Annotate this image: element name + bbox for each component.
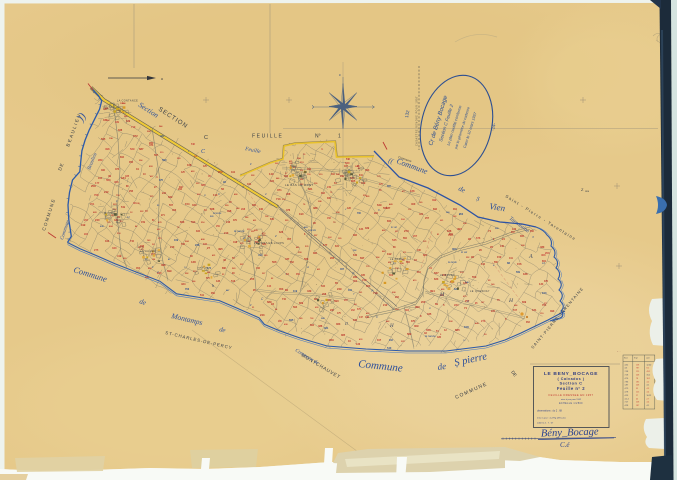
svg-text:419: 419 [117,254,122,258]
svg-text:471: 471 [149,143,154,147]
svg-text:340: 340 [112,246,117,250]
svg-text:331: 331 [270,180,275,183]
svg-text:7.86: 7.86 [625,381,629,383]
svg-text:567: 567 [169,204,174,207]
svg-text:4.79: 4.79 [625,388,629,390]
svg-text:309: 309 [414,324,419,328]
svg-text:332: 332 [203,243,208,246]
svg-text:la lande: la lande [234,229,245,233]
svg-text:4.4: 4.4 [647,392,650,394]
svg-text:A: A [203,194,206,197]
svg-text:4.1: 4.1 [647,405,650,407]
svg-text:154: 154 [185,202,190,206]
svg-text:ECHELLE 1/2500: ECHELLE 1/2500 [559,403,583,405]
svg-text:199: 199 [81,223,86,227]
svg-text:703: 703 [185,288,190,291]
svg-text:631: 631 [335,245,340,248]
svg-text:le val: le val [461,250,467,254]
svg-text:687: 687 [139,147,144,151]
svg-text:185: 185 [361,274,366,277]
svg-text:480: 480 [540,245,545,249]
svg-text:C: C [204,135,208,141]
svg-text:le val: le val [391,226,397,229]
svg-text:258: 258 [636,402,639,404]
svg-text:249: 249 [337,287,342,291]
svg-text:295: 295 [330,257,335,260]
svg-text:1: 1 [338,134,341,140]
svg-text:188: 188 [410,189,415,193]
svg-text:LA CONTANCE: LA CONTANCE [117,100,138,103]
svg-text:cont: cont [646,357,650,360]
svg-text:396: 396 [161,263,166,267]
svg-text:467: 467 [340,268,345,271]
svg-text:M: M [439,293,445,298]
svg-text:one: one [585,190,590,193]
svg-text:C: C [376,315,378,319]
svg-text:408: 408 [286,192,291,196]
svg-text:210: 210 [224,231,229,235]
svg-text:7.27: 7.27 [625,402,629,404]
svg-text:511: 511 [200,294,205,297]
svg-text:506: 506 [106,178,111,182]
svg-text:184: 184 [307,168,312,171]
svg-text:335: 335 [427,312,432,316]
svg-text:661: 661 [308,187,313,191]
svg-text:713: 713 [276,197,281,201]
svg-text:566: 566 [304,257,309,261]
svg-text:1.87: 1.87 [625,385,629,387]
svg-text:92: 92 [223,180,226,184]
svg-text:603: 603 [366,284,371,288]
svg-text:513: 513 [231,280,236,283]
svg-text:CADASTRE RENOVE POUR 1957: CADASTRE RENOVE POUR 1957 [416,96,419,146]
svg-text:399: 399 [432,198,437,202]
svg-text:595: 595 [101,137,106,141]
svg-text:474: 474 [115,168,120,171]
svg-text:208: 208 [322,293,327,296]
svg-text:138: 138 [191,260,196,264]
svg-text:787: 787 [636,368,639,370]
svg-text:259: 259 [218,170,223,174]
svg-text:341: 341 [348,289,353,292]
svg-text:486: 486 [318,324,323,328]
svg-text:699: 699 [167,269,172,273]
svg-text:A: A [528,254,533,260]
svg-text:146: 146 [226,221,231,224]
svg-text:681: 681 [423,254,428,257]
svg-text:45: 45 [636,398,638,400]
svg-text:696: 696 [180,220,185,224]
svg-text:382: 382 [353,234,358,237]
svg-text:406: 406 [114,180,119,184]
svg-text:31.2: 31.2 [647,375,651,377]
svg-text:675: 675 [159,179,164,182]
svg-text:300: 300 [452,247,457,251]
svg-text:177: 177 [95,181,100,185]
svg-text:394: 394 [430,289,435,293]
svg-text:697: 697 [360,256,365,260]
svg-text:84: 84 [285,288,289,292]
svg-text:56: 56 [221,187,224,191]
svg-text:240: 240 [95,218,100,222]
svg-text:421: 421 [114,219,119,222]
svg-text:289: 289 [98,158,103,162]
svg-text:228: 228 [195,243,200,247]
svg-text:4.28: 4.28 [625,405,629,407]
svg-text:LE QUESNAY: LE QUESNAY [470,290,490,293]
svg-text:398: 398 [227,209,232,213]
svg-text:476: 476 [286,209,291,212]
svg-text:159: 159 [141,221,146,224]
svg-text:637: 637 [434,271,439,275]
svg-text:140: 140 [500,245,505,248]
svg-text:35: 35 [636,388,638,390]
svg-text:424: 424 [181,282,186,286]
svg-text:200: 200 [545,251,550,255]
svg-text:626: 626 [279,231,284,234]
svg-text:4.3: 4.3 [647,388,650,390]
svg-text:149: 149 [269,172,274,176]
svg-text:121: 121 [359,227,364,231]
svg-text:649: 649 [377,203,382,207]
svg-text:341: 341 [247,182,252,186]
svg-text:370: 370 [544,280,549,283]
svg-text:212: 212 [383,303,388,307]
svg-text:27: 27 [207,246,210,250]
svg-text:133: 133 [356,343,361,346]
svg-text:701: 701 [90,202,95,206]
svg-text:de: de [437,361,447,372]
svg-text:4.2.4: 4.2.4 [625,398,629,400]
svg-text:396: 396 [300,179,303,181]
svg-text:719: 719 [373,291,378,295]
svg-text:156: 156 [517,262,522,266]
svg-text:218: 218 [362,278,367,282]
svg-text:454: 454 [136,267,141,270]
svg-text:540: 540 [181,243,186,246]
svg-text:la lande: la lande [448,261,457,264]
svg-text:710: 710 [130,240,135,243]
svg-text:mise à jour pour 1962: mise à jour pour 1962 [561,398,582,401]
svg-text:177: 177 [323,243,328,247]
svg-text:319: 319 [126,120,131,123]
svg-text:4.76: 4.76 [625,378,629,380]
svg-text:71: 71 [464,306,467,310]
svg-text:78: 78 [636,378,638,380]
svg-text:125: 125 [636,371,639,373]
svg-text:229: 229 [329,338,334,342]
svg-text:305: 305 [520,235,525,238]
svg-text:4.78: 4.78 [625,392,629,394]
svg-text:Section C: Section C [560,381,583,386]
svg-text:188: 188 [523,272,528,276]
svg-text:FEUILLE DRESSEE EN 1957: FEUILLE DRESSEE EN 1957 [549,393,594,397]
svg-text:A: A [428,307,431,310]
svg-text:a: a [161,77,163,81]
svg-text:370: 370 [411,320,416,323]
svg-text:493: 493 [457,227,462,231]
svg-text:343: 343 [192,203,197,207]
svg-text:421: 421 [419,212,424,216]
svg-text:710: 710 [282,298,287,301]
svg-text:597: 597 [154,154,159,157]
svg-text:192: 192 [387,252,392,256]
svg-text:12: 12 [542,261,546,265]
svg-text:517: 517 [513,309,518,312]
svg-text:4.53: 4.53 [625,395,629,397]
svg-text:519: 519 [121,206,126,209]
svg-text:46: 46 [223,258,226,262]
svg-text:602: 602 [120,156,125,159]
svg-text:719: 719 [131,125,136,129]
svg-text:161: 161 [532,308,537,312]
svg-text:506: 506 [272,260,277,264]
svg-text:317: 317 [377,339,382,342]
svg-text:258: 258 [129,190,134,193]
svg-text:495: 495 [218,247,223,251]
svg-text:545: 545 [392,238,397,242]
svg-text:289: 289 [353,276,358,279]
svg-text:642: 642 [353,254,358,257]
svg-text:437: 437 [285,257,290,261]
svg-text:7.18: 7.18 [625,375,629,377]
svg-text:275: 275 [94,248,99,252]
svg-text:676: 676 [476,236,481,240]
svg-text:452: 452 [388,261,391,264]
svg-text:708: 708 [94,193,99,197]
svg-text:41: 41 [429,266,432,270]
svg-text:372: 372 [133,134,138,138]
svg-text:498: 498 [105,147,110,151]
svg-text:4.3: 4.3 [625,368,628,370]
svg-text:187: 187 [636,405,639,407]
svg-text:605: 605 [351,179,356,183]
svg-text:435: 435 [125,175,130,178]
svg-text:109: 109 [174,239,179,242]
svg-text:540: 540 [387,346,392,350]
svg-text:119: 119 [293,289,298,293]
svg-text:A: A [466,300,469,303]
svg-text:391: 391 [405,309,410,312]
svg-text:185: 185 [636,381,639,383]
svg-text:171: 171 [207,267,212,270]
svg-text:490: 490 [101,169,106,172]
svg-text:168: 168 [187,163,192,167]
svg-text:399: 399 [284,175,289,178]
svg-text:4.2: 4.2 [647,381,650,383]
svg-text:A: A [306,265,309,269]
svg-text:128: 128 [216,280,221,283]
svg-text:695: 695 [289,318,294,322]
svg-text:213: 213 [403,252,406,254]
svg-text:Feuille n° 2: Feuille n° 2 [557,386,585,391]
svg-text:+ . .: + . . [617,351,621,353]
svg-text:559: 559 [472,275,477,279]
svg-text:339: 339 [115,121,120,124]
svg-text:4: 4 [242,185,244,189]
svg-text:685: 685 [201,183,206,187]
svg-text:630: 630 [270,218,275,221]
svg-text:la lande: la lande [213,212,222,215]
svg-text:82: 82 [507,261,511,265]
svg-text:411: 411 [509,257,514,260]
svg-text:FEUILLE: FEUILLE [252,134,284,140]
svg-text:248: 248 [636,375,639,377]
svg-text:Z: Z [274,234,277,238]
svg-text:125: 125 [636,392,639,394]
svg-text:257: 257 [425,217,430,220]
svg-text:400: 400 [353,280,358,283]
svg-text:edité le 4 . 7 . 67: edité le 4 . 7 . 67 [537,422,554,425]
svg-text:644: 644 [481,263,486,266]
svg-text:4.1: 4.1 [647,385,650,387]
svg-text:255: 255 [250,278,255,281]
svg-text:494: 494 [365,168,370,172]
svg-text:463: 463 [172,209,177,212]
svg-text:346: 346 [259,208,264,211]
svg-text:410: 410 [256,267,261,270]
svg-text:371: 371 [277,188,282,192]
svg-text:43.2: 43.2 [647,371,651,373]
svg-text:321: 321 [324,326,329,330]
svg-text:385: 385 [252,204,257,207]
svg-text:LE PONT ES LOUPS: LE PONT ES LOUPS [254,242,284,245]
svg-text:75: 75 [142,247,144,249]
svg-text:7.38: 7.38 [625,371,629,373]
svg-text:Sect: Sect [624,357,628,360]
svg-text:426: 426 [437,336,442,339]
svg-text:594: 594 [293,306,298,309]
svg-text:606: 606 [387,220,392,223]
svg-text:334: 334 [196,230,201,233]
svg-text:12.40: 12.40 [647,364,652,366]
svg-text:la lande: la lande [425,334,436,338]
svg-text:249: 249 [327,186,332,189]
svg-text:190: 190 [299,212,304,216]
svg-text:279: 279 [404,229,409,233]
svg-text:219: 219 [300,170,303,172]
svg-text:689: 689 [299,302,304,305]
svg-text:152: 152 [497,255,502,259]
svg-text:27: 27 [636,395,638,397]
svg-text:590: 590 [162,158,167,162]
svg-text:N°: N° [315,134,321,140]
svg-text:N pl: N pl [634,358,638,360]
svg-text:692: 692 [433,208,438,211]
svg-text:353: 353 [279,287,284,291]
svg-text:4.32: 4.32 [625,364,629,366]
svg-text:240: 240 [170,245,175,249]
svg-text:234: 234 [454,303,459,307]
svg-text:400: 400 [411,202,416,206]
svg-text:71: 71 [488,229,492,233]
svg-text:618: 618 [464,325,469,329]
svg-text:439: 439 [307,289,312,293]
svg-text:264: 264 [84,219,89,222]
svg-text:18.1: 18.1 [647,378,651,380]
svg-text:331: 331 [111,215,114,217]
svg-text:685: 685 [455,328,460,332]
svg-text:484: 484 [160,134,165,138]
svg-text:338: 338 [118,129,123,132]
svg-text:LA VALLEE: LA VALLEE [140,250,156,253]
svg-text:104: 104 [98,177,103,180]
svg-text:457: 457 [287,238,292,241]
svg-text:529: 529 [130,147,135,151]
svg-text:418: 418 [233,241,238,244]
svg-text:669: 669 [522,301,527,304]
svg-text:4.4: 4.4 [647,402,650,404]
svg-text:observations : du 2 . 68: observations : du 2 . 68 [537,410,563,413]
svg-text:594: 594 [191,220,196,224]
svg-text:242: 242 [104,190,109,194]
svg-text:623: 623 [434,277,439,281]
svg-text:273: 273 [481,319,486,323]
svg-text:393: 393 [550,309,555,313]
svg-text:c: c [339,73,341,77]
svg-text:C.é: C.é [560,441,570,449]
svg-text:446: 446 [365,316,370,319]
svg-text:LE HAMEL: LE HAMEL [390,258,405,261]
svg-text:339: 339 [365,227,370,230]
svg-text:187: 187 [344,165,349,168]
svg-text:430: 430 [103,119,108,122]
svg-text:587: 587 [386,206,391,210]
svg-text:158: 158 [636,364,639,366]
svg-text:3: 3 [532,235,534,239]
svg-text:590: 590 [334,299,339,303]
svg-text:8.2: 8.2 [647,368,650,370]
svg-text:LE BAS LE MONT: LE BAS LE MONT [285,183,314,187]
svg-text:122: 122 [512,228,517,231]
svg-text:670: 670 [357,308,362,311]
svg-text:191: 191 [231,171,236,174]
svg-text:2.7: 2.7 [647,398,650,400]
svg-text:363: 363 [336,322,341,326]
svg-text:388: 388 [313,206,318,210]
svg-text:LE BOURG: LE BOURG [440,275,455,277]
svg-text:mise à jour : 4-4 Rg (49 b-4x: mise à jour : 4-4 Rg (49 b-4x) [537,417,566,420]
svg-text:382: 382 [313,252,318,255]
svg-text:H: H [389,324,394,329]
svg-text:668: 668 [210,207,215,211]
svg-text:c: c [250,161,252,166]
svg-text:153: 153 [542,291,547,295]
svg-text:190: 190 [105,240,110,243]
svg-text:207: 207 [413,235,418,238]
svg-text:569: 569 [516,271,521,274]
svg-text:MOISY: MOISY [104,211,114,215]
svg-text:385: 385 [341,334,346,337]
svg-text:la lande: la lande [308,230,317,232]
svg-text:589: 589 [407,332,412,336]
svg-text:622: 622 [168,195,173,199]
svg-text:243: 243 [260,313,265,317]
svg-text:636: 636 [353,319,358,322]
svg-text:Bény_Bocage: Bény_Bocage [541,426,599,439]
svg-text:248: 248 [636,385,639,387]
svg-text:534: 534 [321,285,326,288]
svg-text:225: 225 [491,310,496,313]
svg-text:358: 358 [129,161,134,164]
svg-text:202: 202 [178,188,183,191]
svg-text:298: 298 [241,208,246,211]
svg-text:144: 144 [267,285,272,288]
svg-text:584: 584 [310,324,315,327]
svg-text:200: 200 [421,300,426,304]
svg-text:399: 399 [415,305,420,309]
svg-text:10.52: 10.52 [647,395,652,397]
